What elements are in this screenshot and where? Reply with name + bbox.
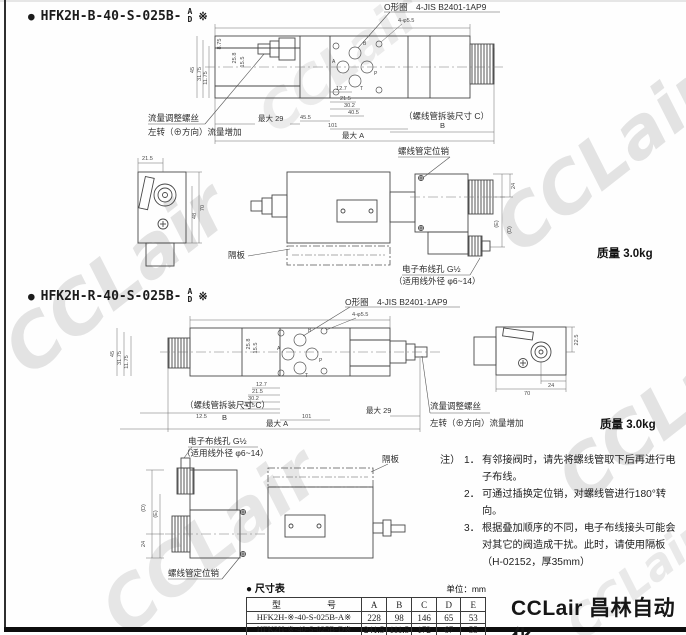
dim-11-75: 11.75 bbox=[124, 355, 130, 369]
partition-label: 隔板 bbox=[228, 250, 246, 260]
port-label-t: T bbox=[305, 373, 308, 379]
value-a: 241.5 bbox=[362, 624, 387, 635]
max-29-label: 最大 29 bbox=[366, 405, 391, 415]
company-logo: CCLair 昌林自动化 bbox=[511, 592, 686, 635]
port-label-a: A bbox=[332, 59, 336, 65]
solenoid-dims-b bbox=[490, 174, 513, 247]
note-number: 3． bbox=[464, 520, 482, 571]
note-item: 注） 1． 有邻接阀时，请先将螺线管取下后再进行电子布线。 bbox=[440, 452, 678, 486]
flow-direction-label: 左转（⊕方向）流量增加 bbox=[430, 418, 524, 428]
port-label-p: P bbox=[374, 71, 378, 77]
wiring-hole-label: 电子布线孔 G½ bbox=[188, 436, 247, 446]
oring-standard-label: 4-JIS B2401-1AP9 bbox=[377, 297, 448, 307]
oring-standard-label: 4-JIS B2401-1AP9 bbox=[416, 2, 487, 12]
dim-25-8: 25.8 bbox=[246, 339, 252, 350]
partition-zone-r bbox=[268, 468, 373, 487]
dimension-table: 型号 A B C D E HFK2H-※-40-S-025B-A※ 228 98… bbox=[246, 597, 486, 635]
flow-direction-label: 左转（⊕方向）流量增加 bbox=[148, 127, 242, 137]
port-face-r bbox=[278, 328, 327, 376]
header-number: 号 bbox=[327, 598, 336, 611]
dim-12-5: 12.5 bbox=[196, 414, 207, 420]
col-a: A bbox=[362, 598, 387, 612]
holes-label: 4-φ5.5 bbox=[352, 312, 368, 318]
note-item: 3． 根据叠加顺序的不同，电子布线接头可能会对其它的阀造成干扰。此时，请使用隔板… bbox=[464, 520, 678, 571]
dimension-table-header: ● 尺寸表 单位：mm bbox=[246, 580, 486, 595]
end-dim-70: 70 bbox=[524, 391, 530, 397]
flow-screw-label: 流量调整螺丝 bbox=[148, 113, 200, 123]
solenoid-removal-dim-label: （螺线管拆装尺寸 C） bbox=[404, 111, 489, 121]
value-b: 98 bbox=[387, 612, 412, 624]
holes-label: 4-φ5.5 bbox=[398, 18, 414, 24]
dim-101: 101 bbox=[328, 123, 337, 129]
col-e: E bbox=[461, 598, 486, 612]
front-view-b bbox=[251, 172, 415, 243]
model-cell: HFK2H-※-40-S-025B-A※ bbox=[247, 612, 362, 624]
solenoid-pin-label: 螺线管定位销 bbox=[168, 568, 220, 578]
bullet-icon: ● bbox=[246, 584, 252, 595]
value-e: 55 bbox=[461, 624, 486, 635]
note-text: 根据叠加顺序的不同，电子布线接头可能会对其它的阀造成干扰。此时，请使用隔板（H-… bbox=[482, 520, 678, 571]
oring-leader bbox=[303, 307, 460, 336]
notes-prefix: 注） bbox=[440, 452, 464, 486]
dim-31-75: 31.75 bbox=[117, 351, 123, 365]
wire-od-label: （适用线外径 φ6~14） bbox=[182, 448, 269, 458]
dim-101: 101 bbox=[302, 414, 311, 420]
end-view-b bbox=[138, 172, 186, 266]
end-dim-21-5: 21.5 bbox=[142, 156, 153, 162]
weight-label: 质量 3.0kg bbox=[600, 417, 656, 431]
model-cell: HFK2H-※-40-S-025B-D※ bbox=[247, 624, 362, 635]
note-item: 2． 可通过插换定位销，对螺线管进行180°转向。 bbox=[464, 486, 678, 520]
plan-view-r bbox=[168, 328, 427, 376]
note-number: 2． bbox=[464, 486, 482, 520]
dim-12-7: 12.7 bbox=[336, 86, 347, 92]
dim-d-label: (D) bbox=[507, 226, 513, 234]
dim-21-5: 21.5 bbox=[252, 389, 263, 395]
partition-leader bbox=[248, 249, 290, 256]
max-29-label: 最大 29 bbox=[258, 113, 283, 123]
dim-24-label: 24 bbox=[141, 541, 147, 547]
col-d: D bbox=[436, 598, 461, 612]
dim-40-5: 40.5 bbox=[348, 110, 359, 116]
solenoid-removal-dim-label: （螺线管拆装尺寸 C） bbox=[185, 400, 270, 410]
oring-label: O形圈 bbox=[345, 297, 369, 307]
dim-b-label: B bbox=[440, 121, 445, 130]
max-a-label: 最大 A bbox=[342, 130, 364, 140]
value-a: 228 bbox=[362, 612, 387, 624]
front-view-r bbox=[165, 458, 405, 558]
col-b: B bbox=[387, 598, 412, 612]
dimension-lines-b bbox=[197, 24, 494, 144]
dim-12-7: 12.7 bbox=[256, 382, 267, 388]
table-row: HFK2H-※-40-S-025B-A※ 228 98 146 65 53 bbox=[247, 612, 486, 624]
value-e: 53 bbox=[461, 612, 486, 624]
dim-15-5: 15.5 bbox=[253, 343, 259, 354]
solenoid-front-b bbox=[410, 174, 505, 256]
end-dim-70: 70 bbox=[200, 205, 206, 211]
dim-11-75: 11.75 bbox=[203, 71, 209, 85]
partition-zone-b bbox=[287, 246, 390, 265]
dim-d-label: (D) bbox=[141, 504, 147, 512]
end-dim-24: 24 bbox=[548, 383, 554, 389]
end-dim-48: 48 bbox=[192, 213, 198, 219]
flow-screw-label: 流量调整螺丝 bbox=[430, 401, 482, 411]
note-text: 可通过插换定位销，对螺线管进行180°转向。 bbox=[482, 486, 678, 520]
value-d: 65 bbox=[436, 612, 461, 624]
dim-21-5: 21.5 bbox=[340, 96, 351, 102]
partition-leader bbox=[371, 464, 388, 472]
drawing-section-b: B A P T 45 31.75 11.75 25.8 15.5 8.75 12… bbox=[0, 0, 686, 288]
table-header-row: 型号 A B C D E bbox=[247, 598, 486, 612]
end-view-r bbox=[474, 327, 566, 375]
table-row: HFK2H-※-40-S-025B-D※ 241.5 111.5 172 67 … bbox=[247, 624, 486, 635]
value-c: 146 bbox=[412, 612, 437, 624]
max-a-label: 最大 A bbox=[266, 418, 288, 428]
notes-block: 注） 1． 有邻接阀时，请先将螺线管取下后再进行电子布线。 2． 可通过插换定位… bbox=[440, 452, 678, 571]
end-dim-22-5: 22.5 bbox=[574, 335, 580, 346]
col-c: C bbox=[412, 598, 437, 612]
unit-label: 单位：mm bbox=[446, 583, 486, 595]
port-label-t: T bbox=[360, 86, 363, 92]
oring-label: O形圈 bbox=[384, 2, 408, 12]
port-label-p: P bbox=[319, 358, 323, 364]
note-text: 有邻接阀时，请先将螺线管取下后再进行电子布线。 bbox=[482, 452, 678, 486]
table-title: ● 尺寸表 bbox=[246, 580, 285, 595]
dim-45: 45 bbox=[190, 67, 196, 73]
dim-b-label: B bbox=[222, 413, 227, 422]
dim-45: 45 bbox=[110, 351, 116, 357]
dim-e-label: (E) bbox=[153, 510, 159, 518]
solenoid-pin-label: 螺线管定位销 bbox=[398, 146, 450, 156]
partition-label: 隔板 bbox=[382, 454, 400, 464]
dim-15-5: 15.5 bbox=[240, 57, 246, 68]
value-b: 111.5 bbox=[387, 624, 412, 635]
note-number: 1． bbox=[464, 452, 482, 486]
dim-45-5: 45.5 bbox=[300, 115, 311, 121]
dim-24-label: 24 bbox=[511, 183, 517, 189]
wiring-hole-label: 电子布线孔 G½ bbox=[402, 264, 461, 274]
header-type: 型 bbox=[272, 598, 281, 611]
weight-label: 质量 3.0kg bbox=[597, 246, 653, 260]
value-c: 172 bbox=[412, 624, 437, 635]
value-d: 67 bbox=[436, 624, 461, 635]
dim-25-8: 25.8 bbox=[232, 53, 238, 64]
model-column-header: 型号 bbox=[247, 598, 362, 612]
holes-leader bbox=[381, 24, 402, 42]
dim-8-75: 8.75 bbox=[217, 39, 223, 50]
wire-od-label: （适用线外径 φ6~14） bbox=[394, 276, 481, 286]
table-title-text: 尺寸表 bbox=[255, 584, 285, 595]
dimension-table-section: ● 尺寸表 单位：mm 型号 A B C D E HFK2H-※-40-S-02… bbox=[246, 580, 486, 635]
oring-leader bbox=[358, 12, 500, 48]
dim-30-2: 30.2 bbox=[344, 103, 355, 109]
catalog-page: CCLair CCLair CCLair CCLair CCLair CCLai… bbox=[0, 0, 686, 635]
dim-e-label: (E) bbox=[494, 220, 500, 228]
